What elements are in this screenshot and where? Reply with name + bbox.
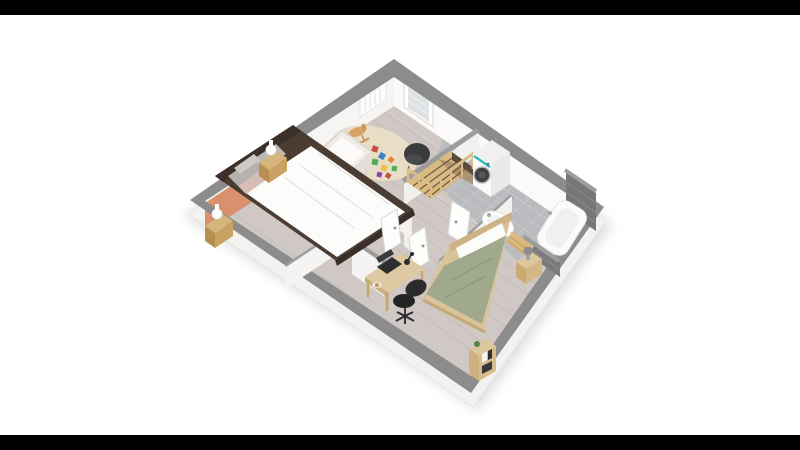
floorplan-render: [0, 0, 800, 450]
floorplan-svg: [0, 0, 800, 450]
letterbox-bottom-bar: [0, 435, 800, 450]
letterbox-top-bar: [0, 0, 800, 15]
plant-icon: [474, 341, 480, 347]
